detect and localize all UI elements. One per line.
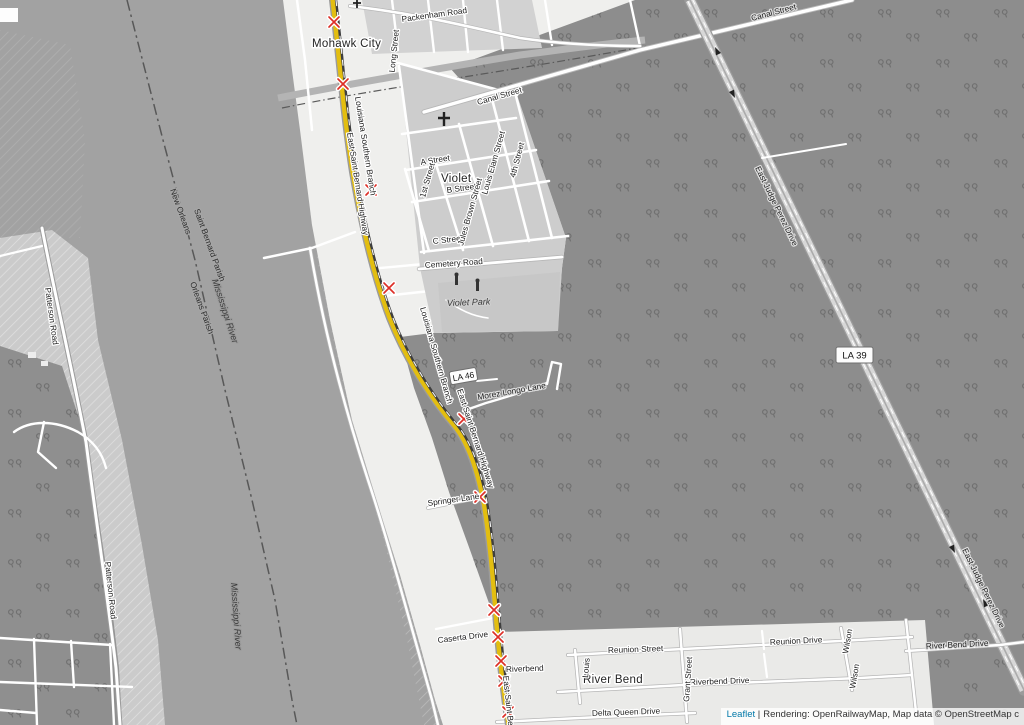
building <box>41 361 48 366</box>
attribution-link-openrailwaymap[interactable]: OpenRailwayMap <box>812 709 887 720</box>
road-label-reunion-street: Reunion Street <box>608 643 664 655</box>
building <box>0 8 18 22</box>
road-label-riverbend-drive: Riverbend Drive <box>690 675 750 687</box>
attribution-bar: Leaflet |Rendering: OpenRailwayMap, Map … <box>721 708 1024 725</box>
svg-text:LA 39: LA 39 <box>842 351 866 362</box>
road-label-riverbend: Riverbend <box>506 663 545 674</box>
attribution-suffix: c <box>1012 709 1019 720</box>
map-tiles: Mohawk City Violet River Bend Mississipp… <box>0 0 1024 725</box>
attribution-map-data: , Map data © <box>887 709 944 720</box>
park-label-violet-park: Violet Park <box>447 296 491 308</box>
shield-la39: LA 39 <box>836 347 873 363</box>
place-label-mohawk-city: Mohawk City <box>312 38 381 50</box>
attribution-link-leaflet[interactable]: Leaflet <box>727 709 756 720</box>
attribution-link-openstreetmap[interactable]: OpenStreetMap <box>945 709 1012 720</box>
attribution-rendering-prefix: Rendering: <box>763 709 812 720</box>
road-label-louis: Louis <box>580 658 592 679</box>
map-canvas[interactable]: Mohawk City Violet River Bend Mississipp… <box>0 0 1024 725</box>
place-label-river-bend: River Bend <box>583 674 643 686</box>
building <box>28 352 36 358</box>
